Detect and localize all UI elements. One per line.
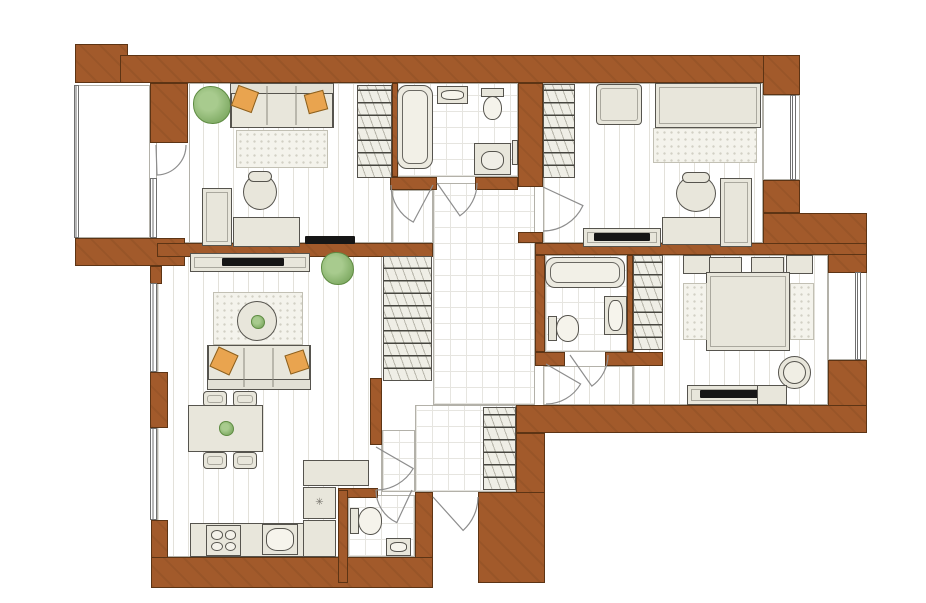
door-office xyxy=(391,185,433,222)
floor-plan-canvas: ✳ xyxy=(0,0,926,603)
door-master-bedroom xyxy=(546,364,581,404)
door-kids-room xyxy=(543,187,583,231)
door-swings xyxy=(0,0,926,603)
door-kitchen xyxy=(376,447,413,490)
door-balcony xyxy=(156,145,186,175)
door-wc xyxy=(376,490,412,523)
door-entrance xyxy=(433,497,478,530)
door-bathroom-1 xyxy=(437,183,477,216)
